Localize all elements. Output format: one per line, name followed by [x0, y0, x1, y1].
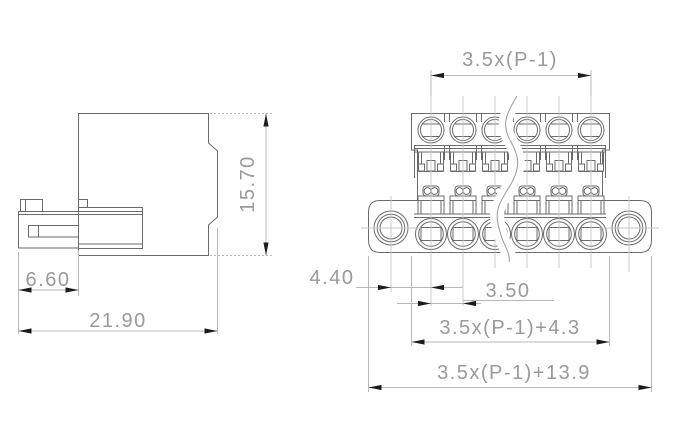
dim-front-depth: 6.60: [19, 250, 79, 334]
dim-overall-width-arrow-left: [369, 385, 382, 390]
side-view-part: [19, 114, 218, 256]
dim-hole-offset-arrow-right: [431, 285, 444, 290]
dim-overall-width-arrow-right: [639, 385, 652, 390]
dim-body-width-label: 3.5x(P-1)+4.3: [439, 317, 580, 339]
dim-pole-span: 3.5x(P-1): [431, 49, 591, 96]
technical-drawing-canvas: 15.70 6.60 21.90: [0, 0, 680, 440]
dim-overall-width-label: 3.5x(P-1)+13.9: [437, 362, 591, 384]
dim-pole-span-label: 3.5x(P-1): [462, 49, 558, 71]
dim-pitch-arrow-right: [463, 301, 476, 306]
side-mid-section: [79, 208, 143, 249]
technical-drawing: 15.70 6.60 21.90: [0, 0, 680, 440]
side-plug-body: [19, 212, 79, 249]
dim-pitch: 3.50: [397, 280, 554, 306]
dim-hole-offset: 4.40: [310, 267, 463, 290]
dim-body-width-arrow-left: [412, 339, 425, 344]
dim-pitch-arrow-left: [418, 301, 431, 306]
dim-hole-offset-label: 4.40: [310, 267, 355, 289]
side-latch-tab: [21, 200, 43, 212]
dim-height-arrow-down: [263, 243, 268, 256]
dim-height-label: 15.70: [237, 155, 259, 213]
front-view-part: [361, 78, 659, 306]
side-small-tab: [79, 200, 88, 208]
dim-height: 15.70: [210, 114, 272, 256]
dim-hole-offset-arrow-left: [378, 285, 391, 290]
dim-height-arrow-up: [263, 114, 268, 127]
dim-total-depth-arrow-left: [19, 328, 32, 333]
dim-pole-span-arrow-right: [578, 73, 591, 78]
front-view: 3.5x(P-1) 4.40 3.50 3.5x(P-1)+4.3: [310, 49, 659, 392]
dim-front-depth-label: 6.60: [26, 269, 71, 291]
dim-body-width-arrow-right: [597, 339, 610, 344]
dim-total-depth-arrow-right: [205, 328, 218, 333]
side-view: 15.70 6.60 21.90: [19, 114, 273, 335]
dim-pitch-label: 3.50: [486, 280, 531, 302]
dim-total-depth-label: 21.90: [89, 310, 147, 332]
dim-pole-span-arrow-left: [431, 73, 444, 78]
